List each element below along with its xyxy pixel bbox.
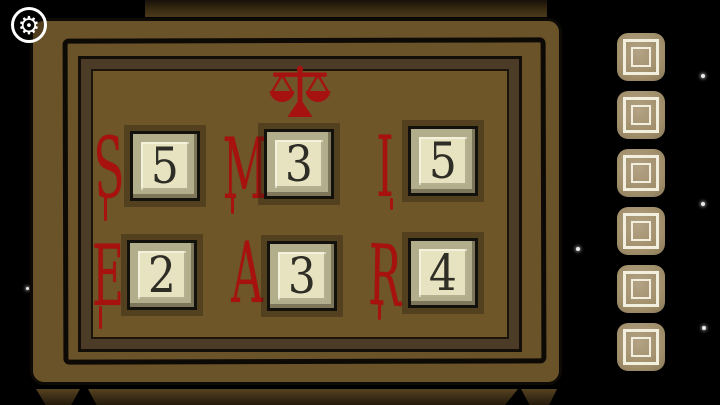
inventory-slot-2[interactable] — [617, 91, 665, 139]
painted-letter-a: A — [231, 231, 263, 315]
star-dot — [701, 74, 705, 78]
tile-number: 3 — [285, 135, 313, 193]
painted-letter-i: I — [376, 125, 393, 209]
star-dot — [701, 202, 705, 206]
inventory-slot-4[interactable] — [617, 207, 665, 255]
table-edge — [88, 389, 518, 405]
tile-number: 2 — [148, 246, 176, 304]
star-dot — [576, 247, 580, 251]
paint-drip — [231, 197, 234, 214]
settings-button[interactable]: ⚙ — [11, 7, 47, 43]
inventory-slot-5[interactable] — [617, 265, 665, 313]
painted-letter-s: S — [93, 124, 126, 212]
painted-letter-e: E — [92, 234, 124, 318]
number-tile-a[interactable]: 3 — [267, 241, 337, 311]
number-tile-m[interactable]: 3 — [264, 129, 334, 199]
inventory-slot-3[interactable] — [617, 149, 665, 197]
inventory-slot-1[interactable] — [617, 33, 665, 81]
tile-number: 5 — [151, 137, 179, 195]
tile-number: 5 — [429, 132, 457, 190]
painted-letter-m: M — [223, 127, 268, 211]
number-tile-e[interactable]: 2 — [127, 240, 197, 310]
balance-scale-icon — [268, 65, 332, 118]
number-tile-i[interactable]: 5 — [408, 126, 478, 196]
tile-number: 3 — [288, 247, 316, 305]
paint-drip — [104, 197, 107, 221]
tile-number: 4 — [429, 244, 457, 302]
table-left-leg — [36, 389, 80, 405]
star-dot — [26, 287, 29, 290]
number-tile-r[interactable]: 4 — [408, 238, 478, 308]
paint-drip — [390, 198, 393, 210]
game-screen: S M I E A R 5 3 5 2 3 4 ⚙ — [0, 0, 720, 405]
table-right-leg — [521, 389, 557, 405]
shelf-top-strip — [145, 0, 547, 17]
gear-icon: ⚙ — [18, 13, 40, 38]
star-dot — [702, 326, 706, 330]
paint-drip — [99, 306, 102, 329]
number-tile-s[interactable]: 5 — [130, 131, 200, 201]
painted-letter-r: R — [368, 233, 402, 319]
paint-drip — [378, 302, 381, 320]
inventory-slot-6[interactable] — [617, 323, 665, 371]
